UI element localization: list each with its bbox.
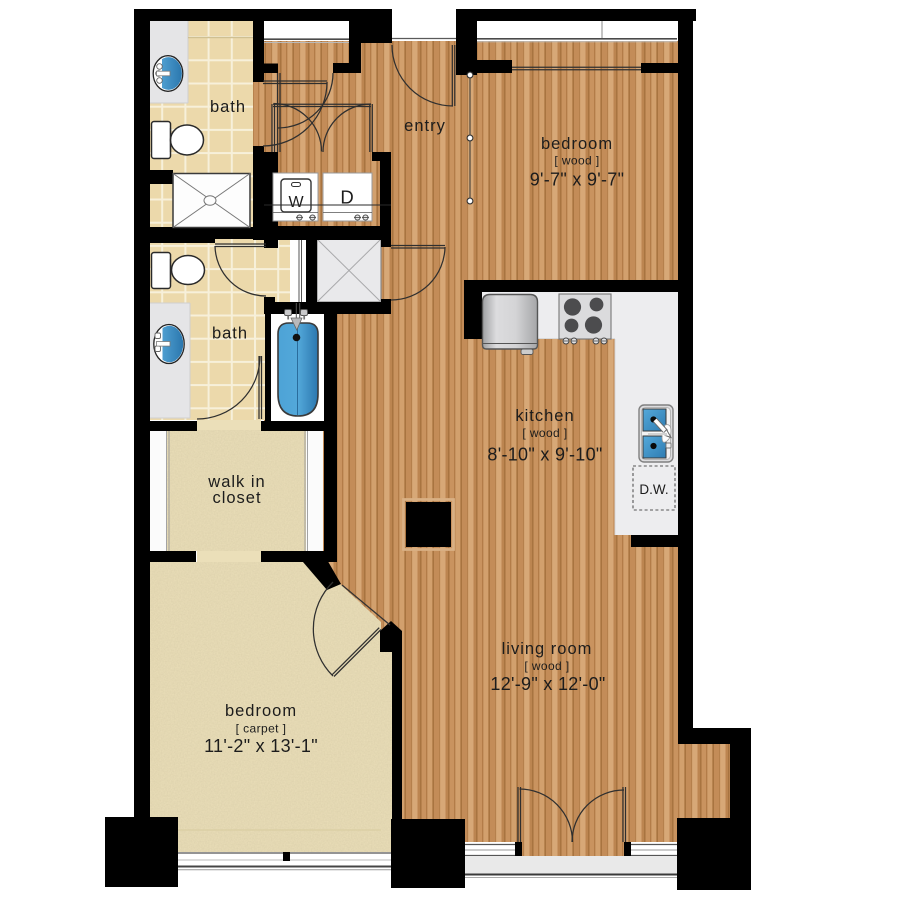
svg-text:[ wood ]: [ wood ] [554, 154, 599, 168]
svg-text:kitchen: kitchen [515, 407, 574, 425]
svg-text:entry: entry [404, 117, 446, 135]
svg-text:closet: closet [212, 489, 261, 507]
svg-text:D.W.: D.W. [639, 482, 668, 497]
svg-text:bedroom: bedroom [225, 702, 297, 720]
svg-text:living room: living room [502, 640, 593, 658]
svg-text:bedroom: bedroom [541, 135, 613, 153]
svg-text:8'-10" x 9'-10": 8'-10" x 9'-10" [487, 445, 602, 465]
svg-text:bath: bath [210, 98, 246, 116]
svg-text:W: W [288, 194, 304, 211]
svg-text:D: D [340, 187, 353, 208]
svg-text:11'-2" x 13'-1": 11'-2" x 13'-1" [204, 736, 318, 756]
svg-text:[ carpet ]: [ carpet ] [236, 722, 287, 736]
svg-text:12'-9" x 12'-0": 12'-9" x 12'-0" [490, 674, 605, 694]
svg-text:[ wood ]: [ wood ] [522, 426, 567, 440]
svg-text:bath: bath [212, 325, 248, 343]
svg-text:9'-7" x 9'-7": 9'-7" x 9'-7" [530, 170, 625, 190]
svg-text:[ wood ]: [ wood ] [524, 659, 569, 673]
